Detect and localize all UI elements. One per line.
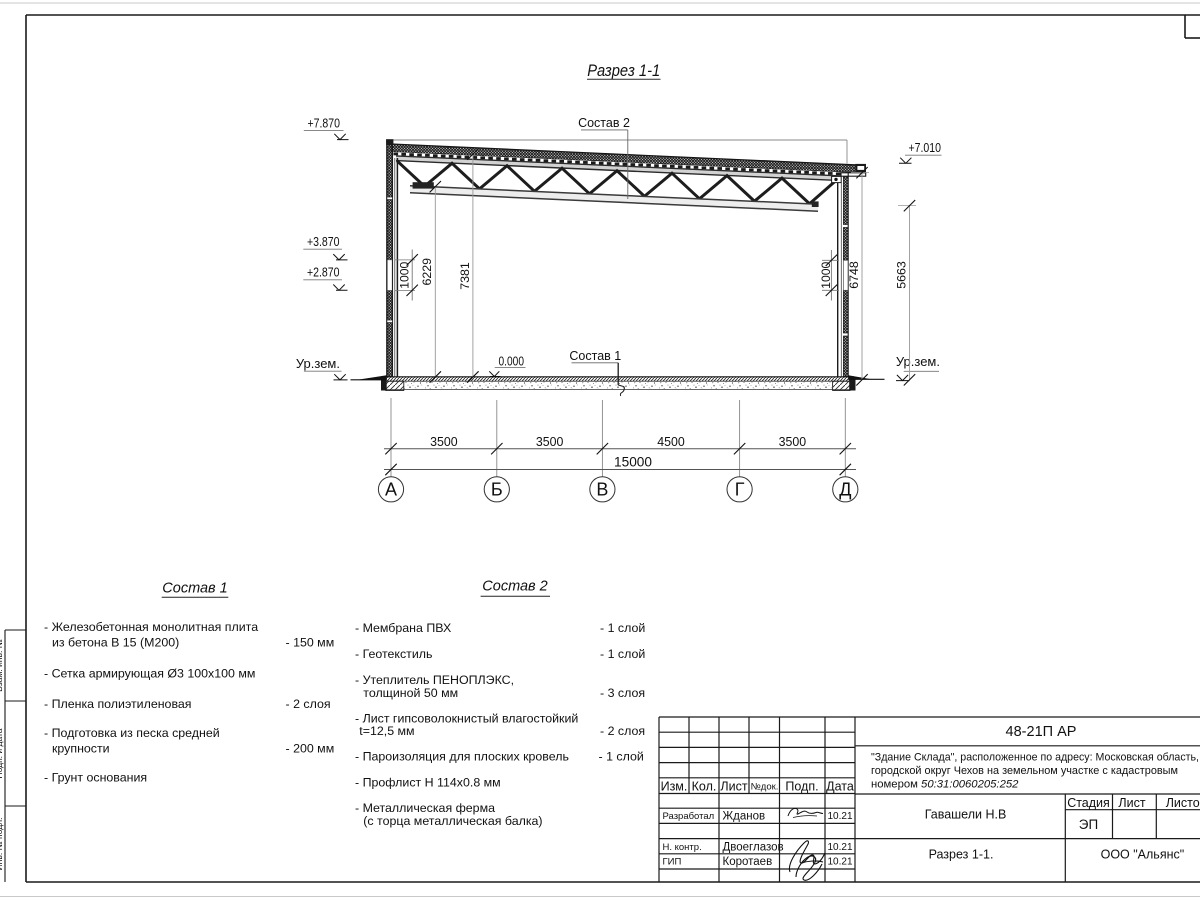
svg-text:t=12,5 мм: t=12,5 мм	[359, 724, 414, 738]
svg-text:Подп.: Подп.	[785, 780, 818, 794]
svg-text:+2.870: +2.870	[307, 265, 340, 280]
svg-text:- 2 слоя: - 2 слоя	[600, 724, 645, 738]
svg-text:Дата: Дата	[826, 780, 854, 794]
svg-text:Жданов: Жданов	[723, 811, 766, 823]
svg-text:15000: 15000	[614, 454, 652, 469]
svg-text:- Утеплитель ПЕНОПЛЭКС,: - Утеплитель ПЕНОПЛЭКС,	[355, 673, 514, 687]
svg-text:Г: Г	[735, 480, 745, 500]
svg-text:4500: 4500	[657, 435, 685, 449]
svg-text:Разрез 1-1: Разрез 1-1	[587, 61, 660, 80]
svg-text:ГИП: ГИП	[663, 857, 682, 868]
svg-text:- 3 слоя: - 3 слоя	[600, 686, 645, 700]
svg-text:- Геотекстиль: - Геотекстиль	[355, 647, 432, 661]
svg-text:- Сетка армирующая Ø3 100х100: - Сетка армирующая Ø3 100х100 мм	[44, 667, 255, 681]
svg-text:А: А	[385, 480, 397, 500]
svg-text:- Металлическая ферма: - Металлическая ферма	[355, 801, 495, 815]
svg-text:3500: 3500	[430, 435, 458, 449]
svg-text:3500: 3500	[779, 435, 807, 449]
svg-text:- 1 слой: - 1 слой	[600, 621, 645, 635]
svg-text:Состав 2: Состав 2	[578, 116, 630, 130]
svg-text:- Мембрана ПВХ: - Мембрана ПВХ	[355, 621, 451, 635]
svg-text:Лист: Лист	[1118, 796, 1145, 810]
svg-text:"Здание Склада", расположенное: "Здание Склада", расположенное по адресу…	[871, 751, 1199, 763]
svg-text:6748: 6748	[849, 261, 861, 289]
svg-text:- 1 слой: - 1 слой	[600, 647, 645, 661]
svg-text:ЭП: ЭП	[1079, 817, 1098, 832]
svg-text:Лист: Лист	[720, 780, 747, 794]
svg-text:- Пароизоляция для плоских кро: - Пароизоляция для плоских кровель	[355, 750, 569, 764]
svg-text:крупности: крупности	[52, 742, 110, 756]
svg-text:- Железобетонная монолитная п: - Железобетонная монолитная плита	[44, 620, 258, 634]
svg-text:Листов: Листов	[1166, 796, 1200, 810]
svg-text:из бетона В 15 (М200): из бетона В 15 (М200)	[52, 635, 179, 649]
svg-text:- Профлист Н 114х0.8 мм: - Профлист Н 114х0.8 мм	[355, 776, 501, 790]
svg-text:- 2 слоя: - 2 слоя	[286, 697, 331, 711]
svg-text:+7.010: +7.010	[909, 140, 942, 155]
svg-text:В: В	[596, 480, 608, 500]
svg-text:№док.: №док.	[751, 782, 779, 793]
svg-text:толщиной 50 мм: толщиной 50 мм	[363, 686, 458, 700]
svg-text:Д: Д	[839, 480, 851, 500]
svg-text:Б: Б	[491, 480, 503, 500]
svg-text:+3.870: +3.870	[307, 234, 340, 249]
svg-text:1000: 1000	[821, 262, 833, 289]
svg-text:Н. контр.: Н. контр.	[663, 842, 702, 853]
svg-text:48-21П АР: 48-21П АР	[1006, 724, 1077, 740]
svg-text:Инв. № подл.: Инв. № подл.	[0, 818, 4, 871]
svg-text:10.21: 10.21	[827, 842, 852, 853]
svg-text:Состав 2: Состав 2	[482, 579, 547, 595]
svg-text:- Пленка полиэтиленовая: - Пленка полиэтиленовая	[44, 697, 192, 711]
svg-text:1000: 1000	[400, 262, 412, 289]
svg-text:Изм.: Изм.	[661, 780, 688, 794]
svg-text:- 200 мм: - 200 мм	[286, 742, 335, 756]
svg-text:Взам. инв. №: Взам. инв. №	[0, 639, 4, 692]
svg-text:3500: 3500	[536, 435, 564, 449]
svg-text:10.21: 10.21	[827, 811, 852, 822]
svg-text:Стадия: Стадия	[1067, 796, 1110, 810]
svg-text:Ур.зем.: Ур.зем.	[296, 356, 340, 371]
svg-text:- 150 мм: - 150 мм	[286, 635, 335, 649]
svg-text:(с торца металлическая балка): (с торца металлическая балка)	[363, 814, 542, 828]
svg-text:Разрез 1-1.: Разрез 1-1.	[929, 848, 994, 862]
svg-text:6229: 6229	[422, 258, 434, 286]
svg-text:5663: 5663	[896, 261, 908, 289]
svg-text:Состав 1: Состав 1	[162, 580, 227, 596]
svg-text:+7.870: +7.870	[308, 116, 341, 131]
svg-text:Подп. и дата: Подп. и дата	[0, 728, 4, 778]
svg-text:7381: 7381	[460, 262, 472, 290]
svg-text:Гавашели Н.В: Гавашели Н.В	[925, 807, 1007, 821]
svg-text:0.000: 0.000	[499, 354, 525, 369]
svg-text:Кол.: Кол.	[692, 780, 717, 794]
svg-text:ООО "Альянс": ООО "Альянс"	[1101, 848, 1185, 862]
svg-text:Коротаев: Коротаев	[723, 856, 773, 868]
svg-text:Двоеглазов: Двоеглазов	[723, 841, 784, 853]
svg-text:городской округ Чехов на земел: городской округ Чехов на земельном участ…	[871, 765, 1178, 777]
svg-text:- Подготовка из песка средней: - Подготовка из песка средней	[44, 726, 220, 740]
svg-text:10.21: 10.21	[827, 856, 852, 867]
svg-text:Ур.зем.: Ур.зем.	[896, 354, 940, 369]
svg-text:Состав 1: Состав 1	[569, 349, 621, 363]
svg-text:номером 50:31:0060205:252: номером 50:31:0060205:252	[871, 778, 1019, 790]
svg-text:- Грунт основания: - Грунт основания	[44, 771, 147, 785]
svg-text:Разработал: Разработал	[663, 811, 715, 822]
svg-text:- 1 слой: - 1 слой	[599, 750, 644, 764]
